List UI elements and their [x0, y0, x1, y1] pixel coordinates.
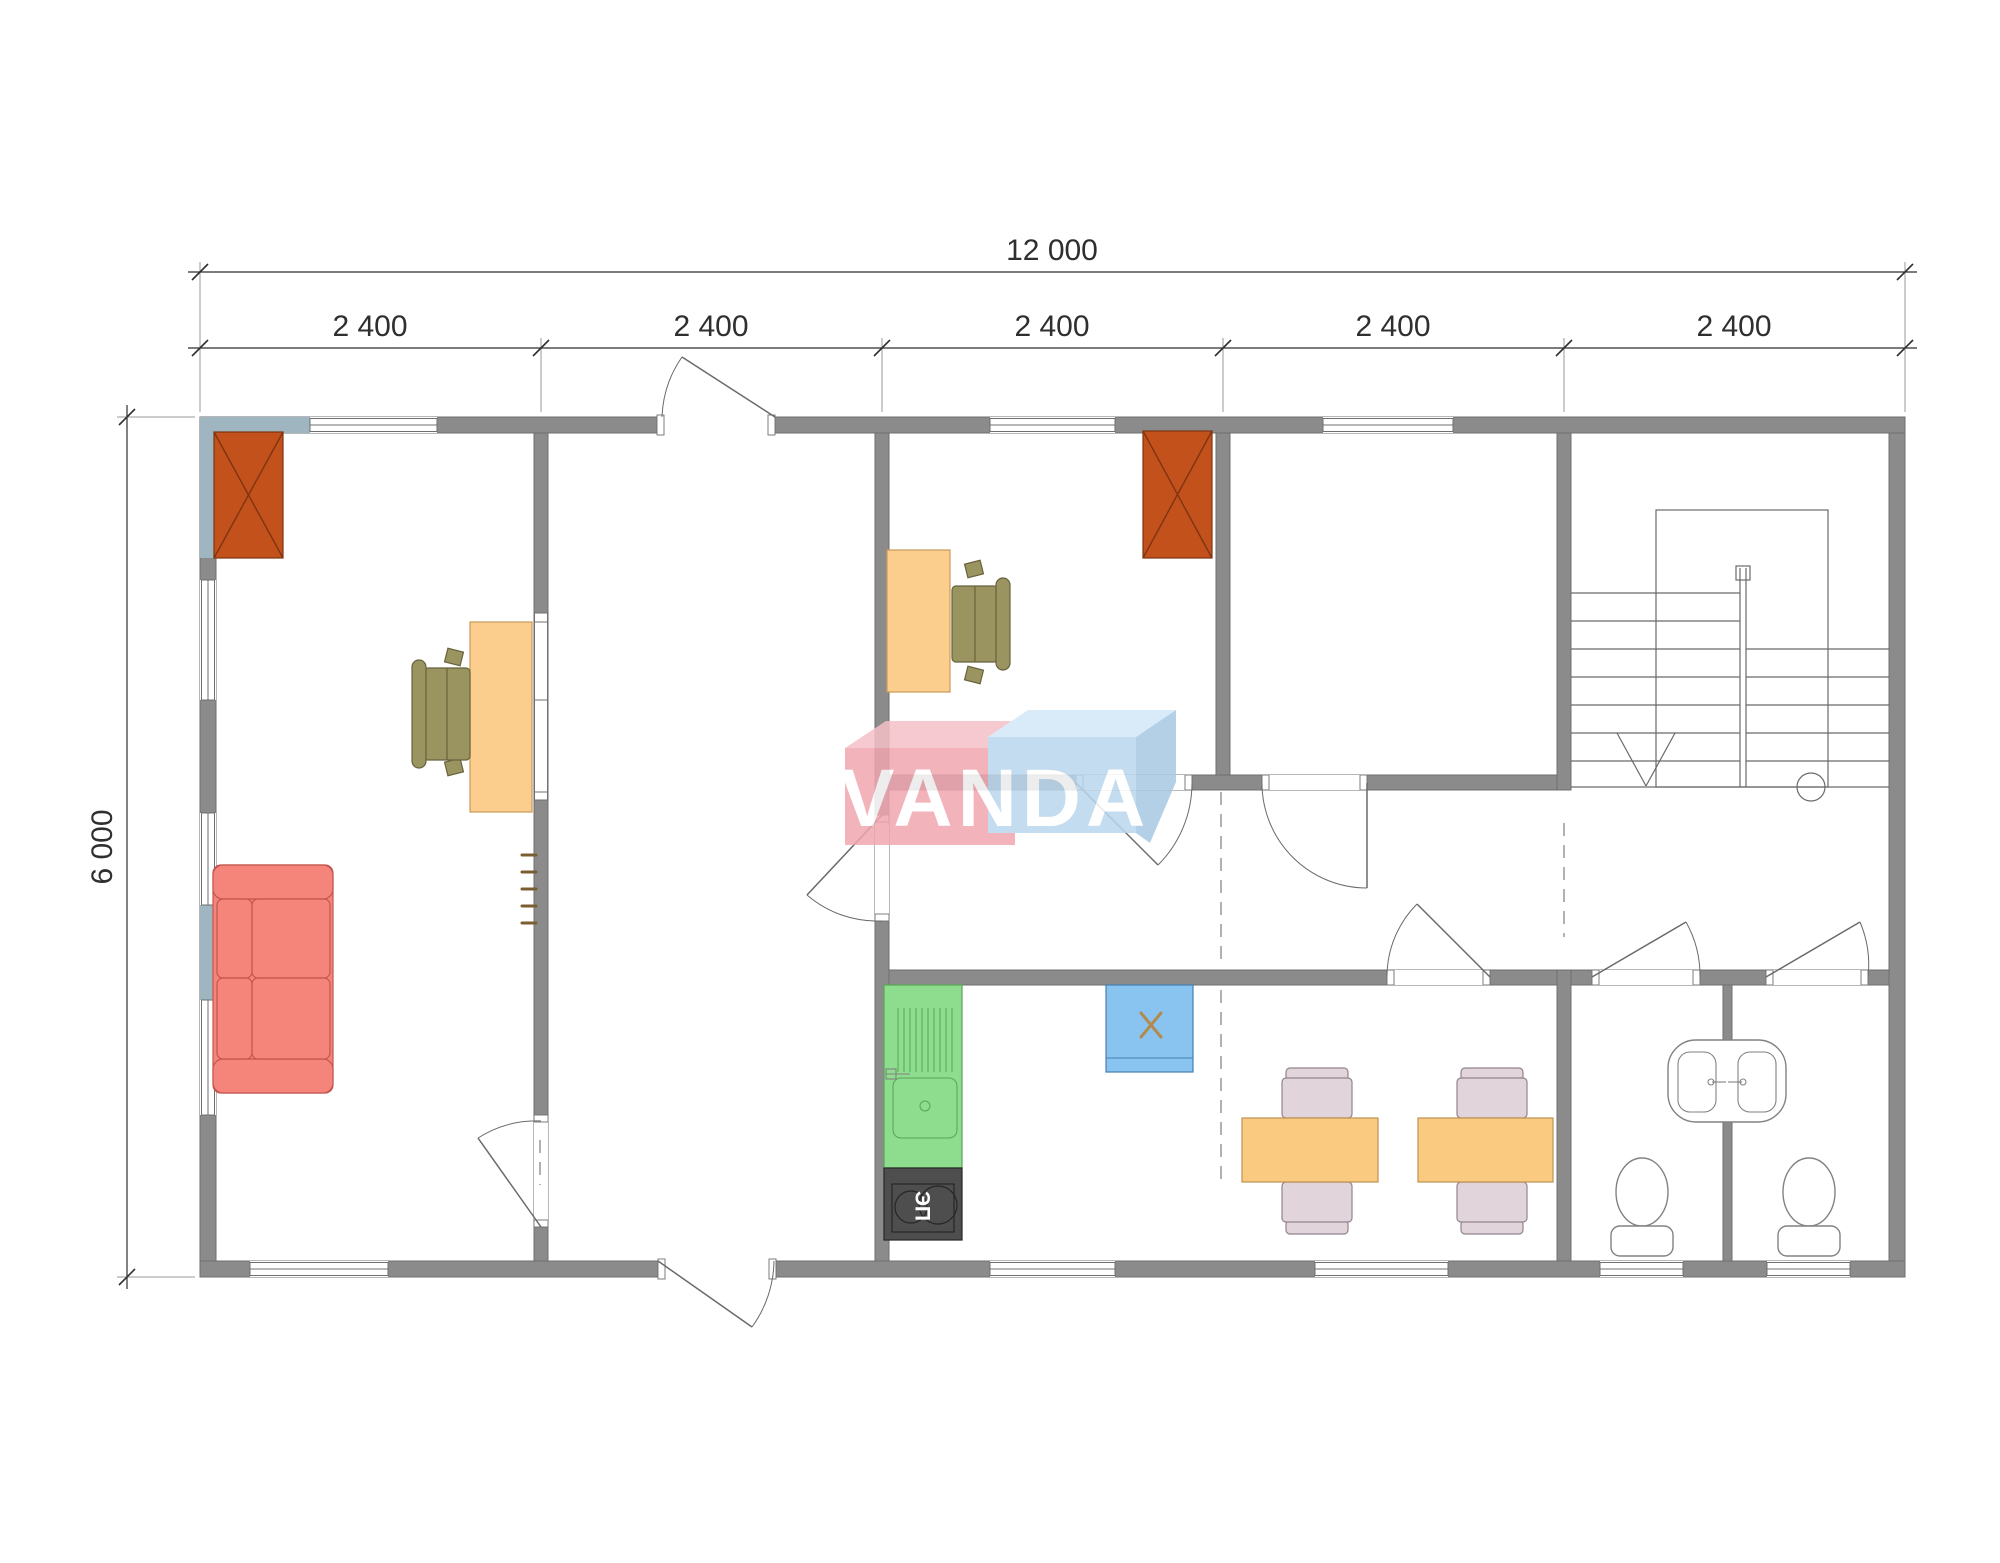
door-arc — [1387, 904, 1417, 977]
jamb-cap — [1592, 970, 1599, 985]
toilet-bowl — [1616, 1158, 1668, 1226]
wall-interior-3 — [1216, 433, 1230, 790]
chair-seat — [1457, 1182, 1527, 1222]
floor-plan-page: 12 000 2 400 2 400 2 400 2 400 2 400 6 0… — [0, 0, 2000, 1563]
sofa-armrest — [213, 1059, 333, 1093]
door-opening — [1387, 970, 1490, 985]
door-leaf-room1 — [478, 1138, 541, 1227]
sofa-seat-cushion — [252, 978, 330, 1059]
dim-height-label: 6 000 — [86, 809, 119, 884]
jamb-cap — [768, 415, 775, 435]
sofa-armrest — [213, 865, 333, 899]
door-leaf-wc-right — [1766, 922, 1860, 977]
sofa — [213, 865, 333, 1093]
zone-boundaries — [540, 792, 1564, 1185]
jamb-cap — [1185, 775, 1192, 790]
chair-armrest — [445, 758, 464, 775]
toilet-tank — [1778, 1226, 1840, 1256]
toilet-left — [1611, 1158, 1673, 1256]
jamb-cap — [1861, 970, 1868, 985]
door-opening — [1592, 970, 1700, 985]
wall-interior-4-lower — [1557, 970, 1571, 1261]
sofa-back-cushion — [217, 978, 252, 1059]
dim-total-width-label: 12 000 — [1006, 234, 1098, 267]
chair-armrest — [965, 666, 984, 683]
entrance-opening-top — [657, 415, 775, 435]
appliance-box — [1106, 985, 1193, 1072]
chair-armrest — [965, 560, 984, 577]
toilet-tank — [1611, 1226, 1673, 1256]
toilet-right — [1778, 1158, 1840, 1256]
door-opening — [1262, 775, 1367, 790]
office-chair — [952, 560, 1010, 683]
jamb-cap — [657, 415, 664, 435]
desk — [887, 550, 950, 692]
door-arc — [1262, 783, 1367, 888]
electric-stove: ЭП — [884, 1168, 962, 1240]
chair-armrest — [445, 648, 464, 665]
stair-rail-post — [1736, 566, 1750, 580]
room-middle-office — [887, 431, 1212, 692]
dim-segment-label: 2 400 — [1355, 310, 1430, 343]
chair-back — [996, 578, 1010, 670]
door-leaf-entrance-top — [682, 357, 775, 417]
dim-segment-label: 2 400 — [1696, 310, 1771, 343]
dim-segment-label: 2 400 — [673, 310, 748, 343]
door-leaf-wc-left — [1592, 922, 1686, 977]
door-opening — [534, 1115, 548, 1227]
chair-back — [412, 660, 426, 768]
dining-table — [1242, 1118, 1378, 1182]
dining-set-1 — [1242, 1068, 1378, 1234]
door-arc — [1860, 922, 1869, 977]
sofa-seat-cushion — [252, 899, 330, 978]
sofa-back-cushion — [217, 899, 252, 978]
stove-label: ЭП — [910, 1191, 933, 1221]
kitchen-dining: ЭП — [884, 985, 1553, 1240]
jamb-cap — [1262, 775, 1269, 790]
dining-set-2 — [1418, 1068, 1553, 1234]
floor-plan-drawing: 12 000 2 400 2 400 2 400 2 400 2 400 6 0… — [0, 0, 2000, 1563]
watermark-logo: VANDA — [840, 710, 1176, 845]
dim-segment-label: 2 400 — [1014, 310, 1089, 343]
door-opening — [1766, 970, 1868, 985]
staircase — [1571, 510, 1889, 801]
jamb-cap — [1693, 970, 1700, 985]
door-arc — [807, 895, 882, 921]
desk — [470, 622, 532, 812]
toilet-bowl — [1783, 1158, 1835, 1226]
jamb-cap — [1387, 970, 1394, 985]
entrance-opening-bottom — [658, 1259, 776, 1279]
door-arc — [478, 1121, 541, 1138]
jamb-cap — [1360, 775, 1367, 790]
door-arc — [662, 357, 682, 417]
logo-text: VANDA — [840, 753, 1150, 844]
stair-direction-arrow — [1646, 733, 1675, 786]
walls — [200, 415, 1905, 1279]
chair-seat — [1282, 1078, 1352, 1118]
office-chair — [412, 648, 470, 775]
dim-segment-label: 2 400 — [332, 310, 407, 343]
kitchen-sink-unit — [884, 985, 962, 1168]
jamb-cap — [875, 914, 889, 921]
door-leaf-dining — [1417, 904, 1490, 977]
room-left-office — [213, 432, 536, 1093]
wall-interior-4-upper — [1557, 433, 1571, 790]
jamb-cap — [1766, 970, 1773, 985]
stair-direction-arrow — [1617, 733, 1646, 786]
door-arc — [1686, 922, 1700, 977]
interior-glazed-panel — [535, 613, 548, 800]
wall-tinted-segment — [200, 417, 310, 433]
dining-table — [1418, 1118, 1553, 1182]
jamb-cap — [1483, 970, 1490, 985]
twin-washbasins — [1668, 1040, 1786, 1122]
wall-exterior-right — [1889, 433, 1905, 1261]
chair-seat — [1282, 1182, 1352, 1222]
windows — [202, 419, 1851, 1276]
chair-seat — [1457, 1078, 1527, 1118]
